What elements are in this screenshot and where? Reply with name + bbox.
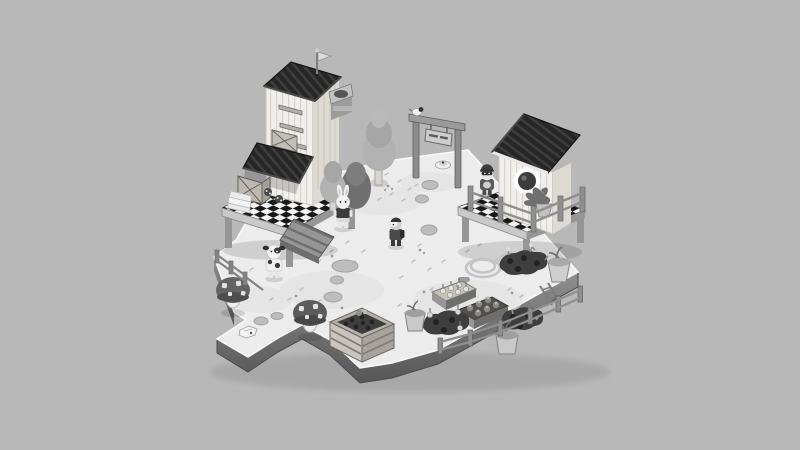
scene-canvas [0,0,800,450]
barn-flag [315,49,331,75]
gate-post-left [413,116,419,178]
gate-post-right [455,124,461,188]
hose-nozzle [458,277,470,282]
game-viewport [0,0,800,450]
gate-sign[interactable] [425,129,452,146]
egg-dish[interactable] [436,161,451,169]
